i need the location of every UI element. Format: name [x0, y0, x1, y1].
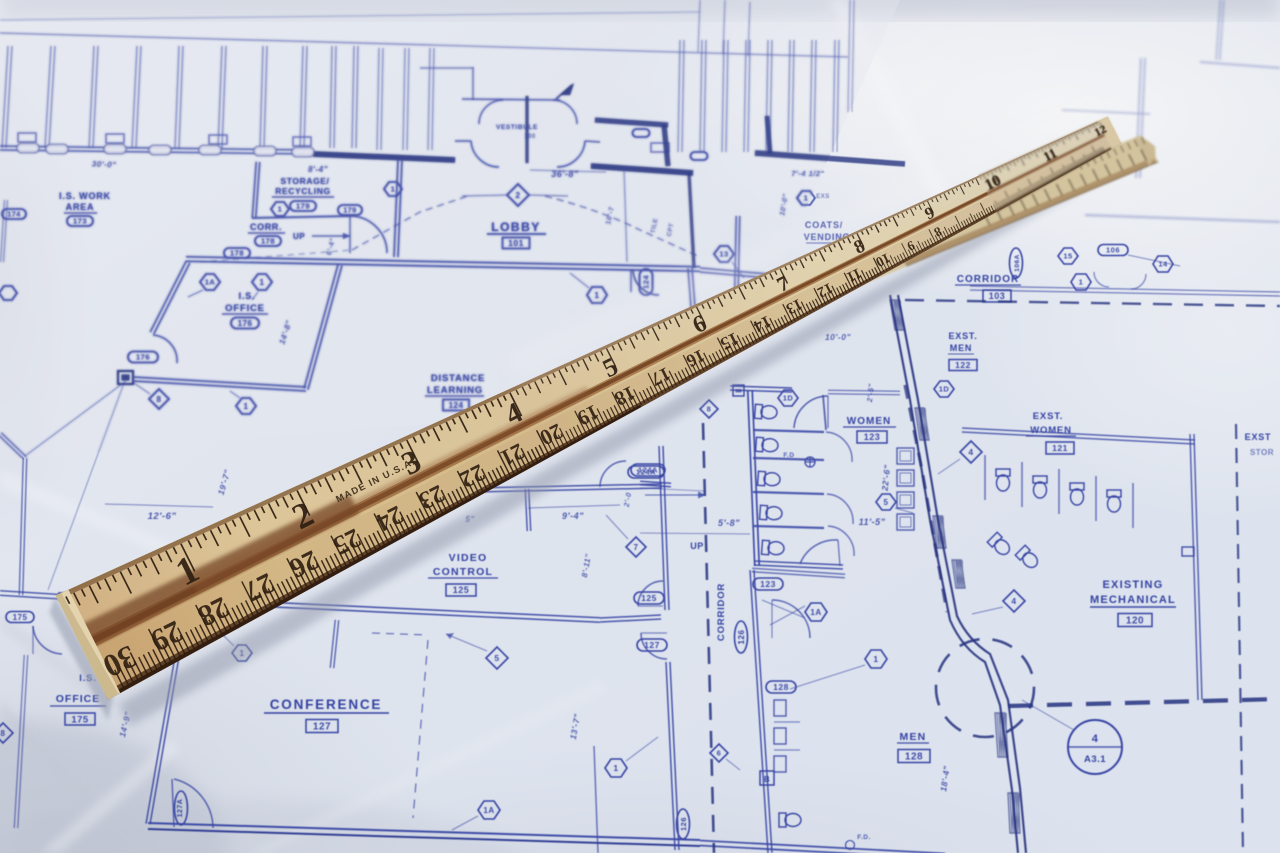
svg-text:B: B [764, 775, 770, 784]
svg-text:EXISTING: EXISTING [1103, 579, 1164, 591]
svg-text:127A: 127A [177, 799, 184, 818]
svg-text:5: 5 [884, 498, 889, 507]
svg-text:1D: 1D [939, 385, 950, 394]
svg-text:124: 124 [642, 275, 651, 289]
svg-text:1: 1 [244, 402, 249, 411]
svg-text:178: 178 [230, 249, 244, 258]
svg-text:12'-6": 12'-6" [148, 511, 177, 522]
svg-text:UP: UP [690, 541, 704, 551]
svg-text:8: 8 [1, 729, 6, 738]
svg-text:1: 1 [595, 291, 600, 300]
svg-text:11'-5": 11'-5" [859, 517, 886, 527]
svg-text:MEN: MEN [950, 343, 972, 353]
svg-text:MEN: MEN [900, 731, 927, 743]
svg-text:7'-4 1/2": 7'-4 1/2" [791, 169, 824, 178]
svg-text:CONTROL: CONTROL [433, 566, 493, 578]
svg-text:F.D: F.D [783, 452, 794, 459]
svg-text:1D: 1D [783, 394, 794, 403]
svg-text:EXST.: EXST. [1033, 411, 1063, 422]
svg-text:STOR: STOR [1250, 448, 1274, 457]
svg-text:CORR.: CORR. [250, 222, 282, 232]
svg-text:124: 124 [449, 401, 464, 410]
svg-text:8'-4": 8'-4" [308, 165, 328, 174]
svg-text:14: 14 [1158, 260, 1168, 269]
svg-text:I.S. WORK: I.S. WORK [59, 191, 111, 201]
svg-text:4: 4 [1011, 596, 1016, 606]
svg-text:CORRIDOR: CORRIDOR [716, 583, 727, 641]
svg-text:EXS: EXS [816, 194, 830, 200]
svg-text:8: 8 [157, 395, 162, 404]
svg-text:CORRIDOR: CORRIDOR [957, 274, 1019, 285]
svg-text:EXST.: EXST. [948, 331, 977, 341]
svg-text:VIDEO: VIDEO [449, 552, 488, 564]
svg-text:2: 2 [516, 191, 521, 200]
svg-text:106A: 106A [1014, 254, 1021, 272]
svg-text:DISTANCE: DISTANCE [431, 373, 485, 384]
svg-text:120: 120 [1126, 616, 1144, 627]
svg-text:1: 1 [873, 654, 878, 664]
svg-text:126: 126 [737, 630, 746, 645]
svg-text:125: 125 [453, 585, 470, 595]
svg-text:175: 175 [71, 714, 89, 725]
svg-text:OFFICE: OFFICE [225, 303, 265, 314]
svg-text:5: 5 [494, 653, 499, 663]
svg-text:5'-8": 5'-8" [718, 518, 740, 528]
svg-text:123: 123 [760, 579, 776, 589]
svg-text:125: 125 [641, 593, 657, 603]
svg-text:VESTIBULE: VESTIBULE [496, 124, 538, 131]
svg-text:173: 173 [73, 217, 87, 226]
svg-text:1: 1 [613, 763, 618, 773]
svg-text:178: 178 [261, 237, 275, 246]
svg-text:176: 176 [238, 319, 253, 328]
svg-text:AREA: AREA [66, 202, 95, 212]
svg-text:LOBBY: LOBBY [491, 220, 541, 234]
svg-text:179: 179 [343, 208, 356, 215]
svg-text:174: 174 [7, 212, 20, 219]
svg-text:106: 106 [1106, 246, 1120, 255]
svg-text:1A: 1A [810, 608, 821, 617]
svg-text:103: 103 [989, 291, 1006, 301]
svg-text:UP: UP [293, 232, 305, 241]
svg-text:7: 7 [634, 543, 639, 552]
svg-text:F.D.: F.D. [857, 834, 871, 841]
svg-text:WOMEN: WOMEN [1030, 425, 1071, 436]
svg-text:1: 1 [804, 194, 809, 203]
svg-text:15: 15 [1063, 252, 1072, 261]
svg-text:CONFERENCE: CONFERENCE [270, 697, 383, 712]
svg-text:128: 128 [905, 752, 923, 763]
svg-text:10'-0": 10'-0" [825, 332, 852, 342]
svg-text:RECYCLING: RECYCLING [275, 186, 330, 196]
svg-text:1A: 1A [483, 806, 494, 815]
svg-text:4: 4 [968, 447, 973, 457]
svg-text:1: 1 [260, 278, 265, 287]
svg-text:126: 126 [679, 817, 688, 831]
svg-text:123: 123 [864, 432, 881, 442]
svg-text:A3.1: A3.1 [1084, 754, 1106, 765]
svg-text:128: 128 [773, 682, 789, 692]
svg-text:30'-0": 30'-0" [92, 159, 117, 169]
svg-text:4: 4 [1092, 733, 1099, 745]
svg-text:6: 6 [717, 749, 722, 758]
svg-text:STORAGE/: STORAGE/ [280, 176, 329, 186]
svg-text:127: 127 [313, 722, 331, 733]
svg-text:WOMEN: WOMEN [847, 416, 891, 427]
svg-text:122: 122 [955, 360, 971, 370]
svg-text:MECHANICAL: MECHANICAL [1090, 594, 1176, 606]
svg-text:1A: 1A [205, 278, 216, 287]
svg-text:1: 1 [278, 205, 283, 214]
svg-text:LEARNING: LEARNING [427, 385, 483, 396]
svg-text:OFFICE: OFFICE [56, 693, 101, 705]
svg-text:124A: 124A [636, 468, 656, 477]
svg-text:EXST: EXST [1245, 432, 1272, 442]
svg-text:176: 176 [136, 353, 150, 362]
svg-text:9'-4": 9'-4" [562, 511, 584, 521]
svg-text:175: 175 [13, 613, 28, 622]
svg-text:1: 1 [391, 185, 396, 194]
svg-text:127: 127 [644, 640, 660, 650]
svg-text:179: 179 [296, 202, 310, 211]
svg-text:100: 100 [524, 134, 536, 140]
svg-text:8: 8 [707, 405, 712, 414]
svg-text:121: 121 [1052, 443, 1068, 453]
svg-text:1: 1 [1079, 278, 1084, 287]
svg-text:101: 101 [508, 238, 524, 248]
